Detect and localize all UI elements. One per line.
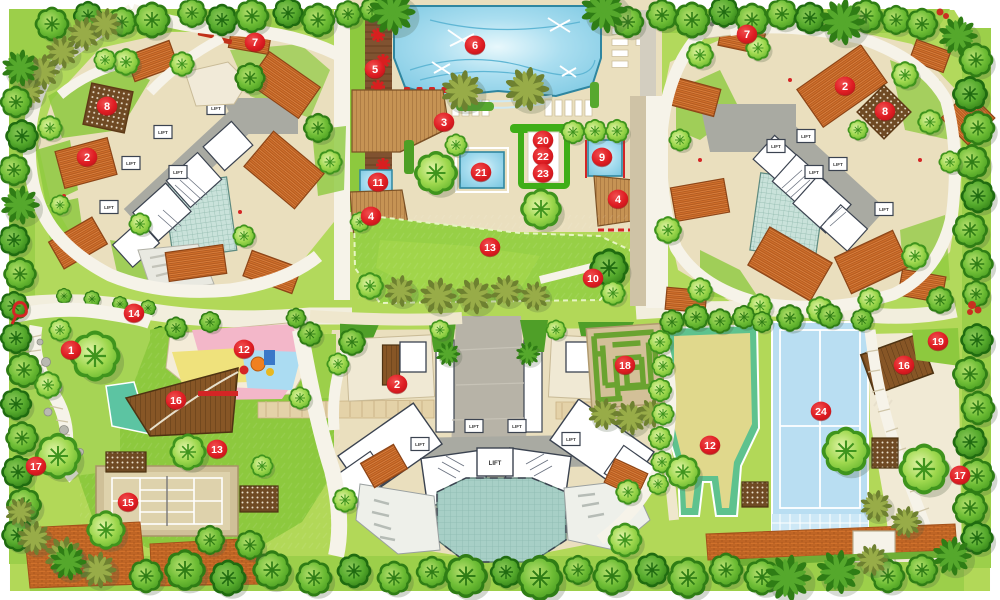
svg-text:3: 3 [441, 117, 447, 129]
svg-text:13: 13 [211, 444, 223, 456]
svg-text:20: 20 [537, 135, 549, 147]
svg-text:24: 24 [815, 406, 827, 418]
svg-text:10: 10 [587, 273, 599, 285]
svg-text:8: 8 [104, 101, 110, 113]
svg-text:LIFT: LIFT [489, 461, 502, 467]
svg-text:2: 2 [84, 152, 90, 164]
svg-text:9: 9 [599, 152, 605, 164]
svg-text:5: 5 [372, 64, 378, 76]
svg-text:16: 16 [898, 360, 910, 372]
svg-text:14: 14 [128, 308, 140, 320]
svg-text:21: 21 [475, 167, 487, 179]
svg-text:6: 6 [472, 40, 478, 52]
svg-text:17: 17 [954, 470, 966, 482]
svg-text:13: 13 [484, 242, 496, 254]
svg-text:23: 23 [537, 168, 549, 180]
svg-text:4: 4 [615, 194, 622, 206]
svg-text:2: 2 [842, 81, 848, 93]
svg-text:7: 7 [744, 29, 750, 41]
svg-text:7: 7 [252, 37, 258, 49]
svg-text:2: 2 [394, 379, 400, 391]
svg-text:12: 12 [704, 440, 716, 452]
svg-text:17: 17 [30, 461, 42, 473]
svg-text:8: 8 [882, 106, 888, 118]
svg-text:22: 22 [537, 151, 549, 163]
svg-text:16: 16 [170, 395, 182, 407]
svg-text:1: 1 [68, 345, 74, 357]
svg-text:12: 12 [238, 344, 250, 356]
svg-text:11: 11 [372, 177, 383, 189]
svg-text:19: 19 [932, 336, 944, 348]
svg-text:15: 15 [122, 497, 134, 509]
svg-text:18: 18 [619, 360, 631, 372]
svg-text:4: 4 [368, 211, 375, 223]
